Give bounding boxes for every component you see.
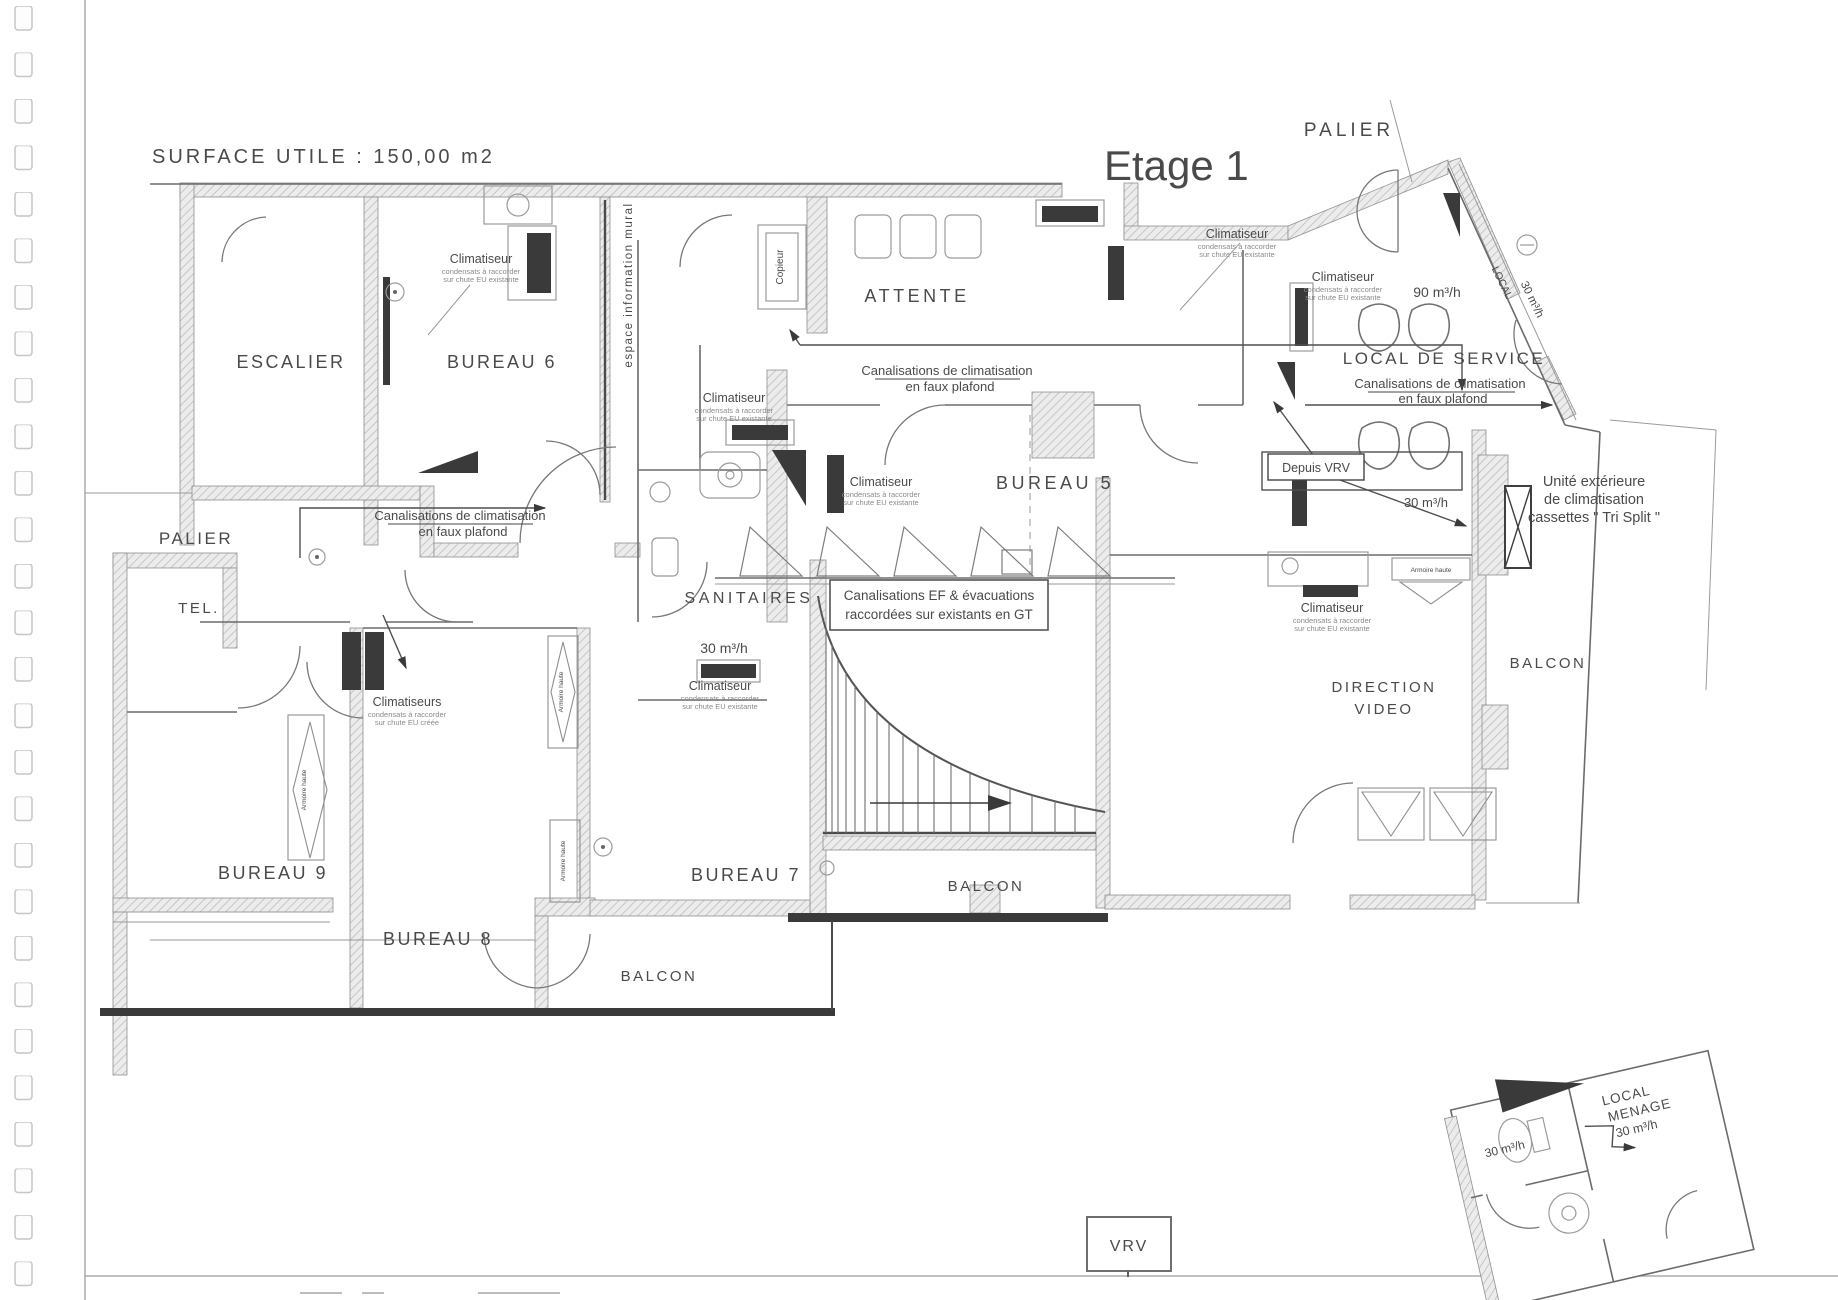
svg-text:Climatiseur: Climatiseur — [450, 252, 513, 266]
room-balcon-right: BALCON — [1510, 655, 1587, 672]
airflow-local-service: 90 m³/h — [1413, 284, 1460, 300]
room-sanitaires: SANITAIRES — [685, 590, 814, 607]
svg-text:sur chute EU existante: sur chute EU existante — [843, 498, 918, 507]
svg-text:Canalisations de climatisation: Canalisations de climatisation — [861, 363, 1032, 378]
room-direction-video-l2: VIDEO — [1354, 701, 1413, 718]
svg-text:Climatiseur: Climatiseur — [689, 679, 752, 693]
svg-text:en faux plafond: en faux plafond — [1399, 391, 1488, 406]
svg-text:raccordées sur existants en GT: raccordées sur existants en GT — [845, 607, 1033, 622]
svg-text:Climatiseur: Climatiseur — [1312, 270, 1375, 284]
canalisation-ef-box: Canalisations EF & évacuations raccordée… — [830, 580, 1048, 630]
room-palier-top: PALIER — [1304, 120, 1394, 141]
canalisation-clim-local-service: Canalisations de climatisation en faux p… — [1354, 376, 1525, 406]
svg-text:sur chute EU créée: sur chute EU créée — [375, 718, 439, 727]
surface-utile-title: SURFACE UTILE : 150,00 m2 — [152, 146, 495, 168]
room-balcon-left: BALCON — [621, 968, 698, 985]
svg-text:Armoire haute: Armoire haute — [558, 671, 565, 712]
climatiseur-note-palier-2: Climatiseur condensats à raccorder sur c… — [1304, 270, 1383, 302]
svg-text:en faux plafond: en faux plafond — [419, 524, 508, 539]
copieur-label: Copieur — [775, 249, 786, 285]
vrv-legend: VRV — [1087, 1217, 1171, 1277]
unite-exterieure-note: Unité extérieure de climatisation casset… — [1528, 474, 1660, 526]
svg-text:Climatiseur: Climatiseur — [1301, 601, 1364, 615]
inset-local-menage: 30 m³/h LOCAL MENAGE 30 m³/h — [1438, 1031, 1753, 1300]
svg-text:sur chute EU existante: sur chute EU existante — [1305, 293, 1380, 302]
room-attente: ATTENTE — [864, 286, 969, 306]
svg-text:en faux plafond: en faux plafond — [906, 379, 995, 394]
svg-text:sur chute EU existante: sur chute EU existante — [1199, 250, 1274, 259]
room-bureau5: BUREAU 5 — [996, 473, 1114, 493]
climatiseur-note-direction-video: Climatiseur condensats à raccorder sur c… — [1293, 601, 1372, 633]
svg-text:sur chute EU existante: sur chute EU existante — [1294, 624, 1369, 633]
room-bureau9: BUREAU 9 — [218, 863, 328, 883]
svg-text:Climatiseur: Climatiseur — [1206, 227, 1269, 241]
climatiseur-note-bureau5: Climatiseur condensats à raccorder sur c… — [842, 475, 921, 507]
svg-text:sur chute EU existante: sur chute EU existante — [696, 414, 771, 423]
svg-text:sur chute EU existante: sur chute EU existante — [443, 275, 518, 284]
vrv-label: VRV — [1110, 1238, 1149, 1255]
airflow-sanitaires: 30 m³/h — [700, 640, 747, 656]
svg-text:Climatiseurs: Climatiseurs — [373, 695, 442, 709]
svg-text:Canalisations de climatisation: Canalisations de climatisation — [374, 508, 545, 523]
svg-text:cassettes " Tri Split ": cassettes " Tri Split " — [1528, 510, 1660, 526]
svg-text:Climatiseur: Climatiseur — [850, 475, 913, 489]
binder-holes — [13, 6, 37, 1296]
room-bureau7: BUREAU 7 — [691, 865, 801, 885]
misc-labels: Depuis VRV Unité extérieure de climatisa… — [301, 202, 1660, 881]
room-balcon-center: BALCON — [948, 878, 1025, 895]
svg-text:Canalisations EF & évacuations: Canalisations EF & évacuations — [844, 588, 1035, 603]
room-tel: TEL. — [178, 600, 220, 617]
svg-text:Armoire haute: Armoire haute — [560, 840, 567, 881]
climatiseur-note-sanitaires-bas: Climatiseur condensats à raccorder sur c… — [681, 679, 760, 711]
svg-text:Climatiseur: Climatiseur — [703, 391, 766, 405]
svg-text:de climatisation: de climatisation — [1544, 492, 1644, 508]
espace-mural-label: espace information mural — [623, 202, 635, 367]
svg-text:sur chute EU existante: sur chute EU existante — [682, 702, 757, 711]
svg-text:Canalisations de climatisation: Canalisations de climatisation — [1354, 376, 1525, 391]
svg-text:Armoire haute: Armoire haute — [301, 769, 308, 810]
climatiseurs-note-bureau9: Climatiseurs condensats à raccorder sur … — [368, 695, 447, 727]
room-escalier: ESCALIER — [236, 352, 345, 372]
svg-text:Depuis VRV: Depuis VRV — [1282, 461, 1351, 475]
room-bureau6: BUREAU 6 — [447, 352, 557, 372]
canalisation-clim-attente: Canalisations de climatisation en faux p… — [861, 363, 1032, 394]
room-bureau8: BUREAU 8 — [383, 929, 493, 949]
airflow-local-vent-flow: 30 m³/h — [1518, 280, 1546, 320]
floor-title: Etage 1 — [1104, 142, 1249, 189]
room-palier-left: PALIER — [159, 529, 233, 548]
scanned-floor-plan-page: 30 m³/h LOCAL MENAGE 30 m³/h VRV SURFACE… — [0, 0, 1838, 1300]
curved-staircase — [818, 596, 1105, 833]
svg-text:Unité extérieure: Unité extérieure — [1543, 474, 1645, 490]
room-local-de-service: LOCAL DE SERVICE — [1343, 349, 1546, 368]
depuis-vrv-tag: Depuis VRV — [1268, 454, 1364, 480]
climatiseur-note-bureau6: Climatiseur condensats à raccorder sur c… — [442, 252, 521, 284]
svg-text:Armoire haute: Armoire haute — [1411, 567, 1452, 574]
room-direction-video-l1: DIRECTION — [1332, 679, 1437, 696]
climatiseur-note-palier-1: Climatiseur condensats à raccorder sur c… — [1198, 227, 1277, 259]
climatiseur-note-sanitaires-haut: Climatiseur condensats à raccorder sur c… — [695, 391, 774, 423]
airflow-depuis-vrv-zone: 30 m³/h — [1404, 495, 1448, 510]
